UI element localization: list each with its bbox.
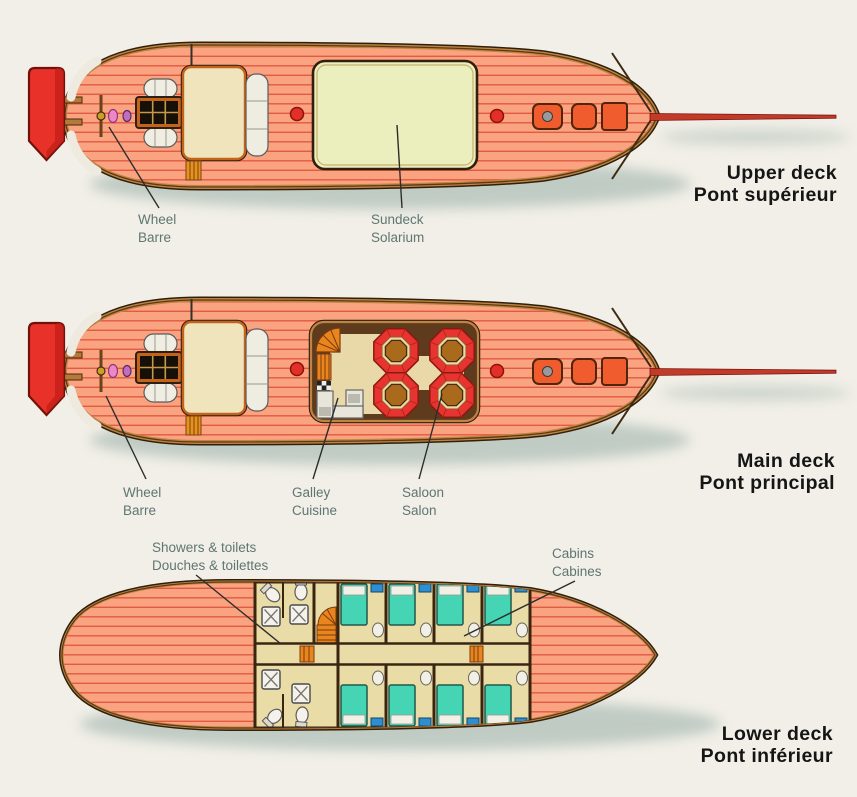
label-showers-en: Showers & toilets: [152, 540, 257, 555]
galley-ladder: [317, 354, 331, 380]
deck-plan-diagram: Wheel Barre Sundeck Solarium Upper deck …: [0, 0, 857, 797]
label-galley-fr: Cuisine: [292, 503, 337, 518]
sundeck-area: [313, 61, 477, 169]
lower-deck-title-en: Lower deck: [722, 723, 833, 745]
bowsprit-shadow: [660, 386, 850, 400]
lower-deck-title-fr: Pont inférieur: [701, 745, 833, 767]
label-wheel-en: Wheel: [138, 212, 176, 227]
label-sundeck-en: Sundeck: [371, 212, 424, 227]
bowsprit-shadow: [660, 130, 850, 144]
label-wheel-fr: Barre: [138, 230, 171, 245]
upper-deck-title-en: Upper deck: [727, 162, 837, 184]
label-galley-en: Galley: [292, 485, 331, 500]
boat-deck-plan-figure: Wheel Barre Sundeck Solarium Upper deck …: [0, 0, 857, 797]
upper-deck-title-fr: Pont supérieur: [694, 184, 837, 206]
label-sundeck-fr: Solarium: [371, 230, 424, 245]
label-saloon-fr: Salon: [402, 503, 437, 518]
galley-checker-floor: [317, 381, 331, 390]
label-saloon-en: Saloon: [402, 485, 444, 500]
label-wheel-en: Wheel: [123, 485, 161, 500]
main-deck-title-fr: Pont principal: [699, 472, 835, 494]
label-showers-fr: Douches & toilettes: [152, 558, 269, 573]
label-cabins-en: Cabins: [552, 546, 594, 561]
main-deck-title-en: Main deck: [737, 450, 835, 472]
label-wheel-fr: Barre: [123, 503, 156, 518]
lower-deck-interior: [255, 580, 530, 729]
label-cabins-fr: Cabines: [552, 564, 602, 579]
